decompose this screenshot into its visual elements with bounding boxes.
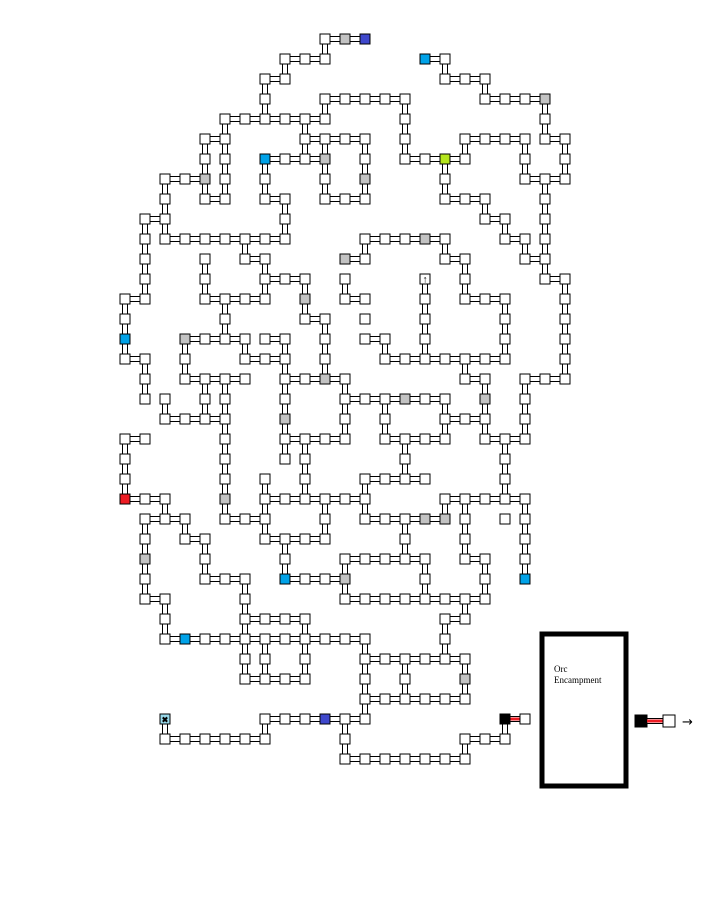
- room-7-10[interactable]: [260, 234, 270, 244]
- room-5-17[interactable]: [220, 374, 230, 384]
- room-9-25[interactable]: [300, 534, 310, 544]
- room-2-23[interactable]: [160, 494, 170, 504]
- room-21-8[interactable]: [540, 194, 550, 204]
- room-16-10[interactable]: [440, 234, 450, 244]
- room-6-11[interactable]: [240, 254, 250, 264]
- room-11-34[interactable]: [340, 714, 350, 724]
- room-20-3[interactable]: [520, 94, 530, 104]
- room-15-28[interactable]: [420, 594, 430, 604]
- room-10-25[interactable]: [320, 534, 330, 544]
- room-11-8[interactable]: [340, 194, 350, 204]
- room-14-26[interactable]: [400, 554, 410, 564]
- room-16-23[interactable]: [440, 494, 450, 504]
- room-17-23[interactable]: [460, 494, 470, 504]
- room-12-33[interactable]: [360, 694, 370, 704]
- room-6-28[interactable]: [240, 594, 250, 604]
- room-6-31[interactable]: [240, 654, 250, 664]
- room-11-17[interactable]: [340, 374, 350, 384]
- room-16-6[interactable]: [440, 154, 450, 164]
- room-2-7[interactable]: [160, 174, 170, 184]
- room-10-27[interactable]: [320, 574, 330, 584]
- room-13-22[interactable]: [380, 474, 390, 484]
- room-5-35[interactable]: [220, 734, 230, 744]
- room-11-19[interactable]: [340, 414, 350, 424]
- room-10-8[interactable]: [320, 194, 330, 204]
- room-7-29[interactable]: [260, 614, 270, 624]
- room-8-6[interactable]: [280, 154, 290, 164]
- room-13-16[interactable]: [380, 354, 390, 364]
- room-16-16[interactable]: [440, 354, 450, 364]
- room-6-35[interactable]: [240, 734, 250, 744]
- room-15-24[interactable]: [420, 514, 430, 524]
- room-14-25[interactable]: [400, 534, 410, 544]
- room-18-28[interactable]: [480, 594, 490, 604]
- room-10-15[interactable]: [320, 334, 330, 344]
- room-19-14[interactable]: [500, 314, 510, 324]
- room-21-17[interactable]: [540, 374, 550, 384]
- room-6-24[interactable]: [240, 514, 250, 524]
- room-10-17[interactable]: [320, 374, 330, 384]
- room-0-21[interactable]: [120, 454, 130, 464]
- room-11-27[interactable]: [340, 574, 350, 584]
- room-20-17[interactable]: [520, 374, 530, 384]
- room-13-33[interactable]: [380, 694, 390, 704]
- room-21-10[interactable]: [540, 234, 550, 244]
- room-1-11[interactable]: [140, 254, 150, 264]
- room-22-16[interactable]: [560, 354, 570, 364]
- room-12-34[interactable]: [360, 714, 370, 724]
- room-17-12[interactable]: [460, 274, 470, 284]
- room-10-24[interactable]: [320, 514, 330, 524]
- room-21-12[interactable]: [540, 274, 550, 284]
- room-9-4[interactable]: [300, 114, 310, 124]
- room-18-20[interactable]: [480, 434, 490, 444]
- room-9-30[interactable]: [300, 634, 310, 644]
- room-7-6[interactable]: [260, 154, 270, 164]
- room-11-36[interactable]: [340, 754, 350, 764]
- room-18-35[interactable]: [480, 734, 490, 744]
- room-7-8[interactable]: [260, 194, 270, 204]
- room-8-17[interactable]: [280, 374, 290, 384]
- room-1-13[interactable]: [140, 294, 150, 304]
- room-21-9[interactable]: [540, 214, 550, 224]
- room-16-33[interactable]: [440, 694, 450, 704]
- room-14-20[interactable]: [400, 434, 410, 444]
- room-17-24[interactable]: [460, 514, 470, 524]
- room-22-12[interactable]: [560, 274, 570, 284]
- room-12-22[interactable]: [360, 474, 370, 484]
- room-17-6[interactable]: [460, 154, 470, 164]
- room-7-11[interactable]: [260, 254, 270, 264]
- room-9-31[interactable]: [300, 654, 310, 664]
- room-20-18[interactable]: [520, 394, 530, 404]
- room-10-7[interactable]: [320, 174, 330, 184]
- room-8-8[interactable]: [280, 194, 290, 204]
- room-9-22[interactable]: [300, 474, 310, 484]
- room-17-13[interactable]: [460, 294, 470, 304]
- room-20-20[interactable]: [520, 434, 530, 444]
- room-19-3[interactable]: [500, 94, 510, 104]
- room-7-34[interactable]: [260, 714, 270, 724]
- room-20-5[interactable]: [520, 134, 530, 144]
- room-22-14[interactable]: [560, 314, 570, 324]
- room-17-8[interactable]: [460, 194, 470, 204]
- room-18-8[interactable]: [480, 194, 490, 204]
- room-12-23[interactable]: [360, 494, 370, 504]
- room-15-22[interactable]: [420, 474, 430, 484]
- room-13-31[interactable]: [380, 654, 390, 664]
- room-9-5[interactable]: [300, 134, 310, 144]
- room-3-17[interactable]: [180, 374, 190, 384]
- room-18-9[interactable]: [480, 214, 490, 224]
- room-7-35[interactable]: [260, 734, 270, 744]
- room-13-26[interactable]: [380, 554, 390, 564]
- room-10-3[interactable]: [320, 94, 330, 104]
- room-22-13[interactable]: [560, 294, 570, 304]
- room-12-15[interactable]: [360, 334, 370, 344]
- room-10-0[interactable]: [320, 34, 330, 44]
- room-5-5[interactable]: [220, 134, 230, 144]
- room-8-10[interactable]: [280, 234, 290, 244]
- room-20-34[interactable]: [520, 714, 530, 724]
- room-21-4[interactable]: [540, 114, 550, 124]
- room-3-30[interactable]: [180, 634, 190, 644]
- room-4-5[interactable]: [200, 134, 210, 144]
- room-9-6[interactable]: [300, 154, 310, 164]
- room-13-3[interactable]: [380, 94, 390, 104]
- room-10-5[interactable]: [320, 134, 330, 144]
- room-4-26[interactable]: [200, 554, 210, 564]
- room-9-14[interactable]: [300, 314, 310, 324]
- room-7-7[interactable]: [260, 174, 270, 184]
- room-7-13[interactable]: [260, 294, 270, 304]
- room-6-17[interactable]: [240, 374, 250, 384]
- room-4-10[interactable]: [200, 234, 210, 244]
- room-8-23[interactable]: [280, 494, 290, 504]
- room-10-16[interactable]: [320, 354, 330, 364]
- room-19-20[interactable]: [500, 434, 510, 444]
- room-2-28[interactable]: [160, 594, 170, 604]
- room-12-24[interactable]: [360, 514, 370, 524]
- room-4-8[interactable]: [200, 194, 210, 204]
- room-19-35[interactable]: [500, 734, 510, 744]
- room-7-24[interactable]: [260, 514, 270, 524]
- room-12-11[interactable]: [360, 254, 370, 264]
- room-2-19[interactable]: [160, 414, 170, 424]
- room-8-25[interactable]: [280, 534, 290, 544]
- room-4-13[interactable]: [200, 294, 210, 304]
- room-20-10[interactable]: [520, 234, 530, 244]
- room-14-31[interactable]: [400, 654, 410, 664]
- room-8-15[interactable]: [280, 334, 290, 344]
- room-20-7[interactable]: [520, 174, 530, 184]
- room-15-20[interactable]: [420, 434, 430, 444]
- room-2-10[interactable]: [160, 234, 170, 244]
- room-8-18[interactable]: [280, 394, 290, 404]
- room-14-36[interactable]: [400, 754, 410, 764]
- room-5-30[interactable]: [220, 634, 230, 644]
- room-7-2[interactable]: [260, 74, 270, 84]
- room-0-23[interactable]: [120, 494, 130, 504]
- room-15-27[interactable]: [420, 574, 430, 584]
- room-15-18[interactable]: [420, 394, 430, 404]
- room-3-15[interactable]: [180, 334, 190, 344]
- room-11-35[interactable]: [340, 734, 350, 744]
- room-12-31[interactable]: [360, 654, 370, 664]
- room-17-31[interactable]: [460, 654, 470, 664]
- room-5-13[interactable]: [220, 294, 230, 304]
- room-1-28[interactable]: [140, 594, 150, 604]
- room-15-16[interactable]: [420, 354, 430, 364]
- room-17-19[interactable]: [460, 414, 470, 424]
- room-1-16[interactable]: [140, 354, 150, 364]
- room-20-23[interactable]: [520, 494, 530, 504]
- room-5-18[interactable]: [220, 394, 230, 404]
- room-8-2[interactable]: [280, 74, 290, 84]
- room-12-13[interactable]: [360, 294, 370, 304]
- room-7-32[interactable]: [260, 674, 270, 684]
- room-8-26[interactable]: [280, 554, 290, 564]
- room-19-21[interactable]: [500, 454, 510, 464]
- room-15-13[interactable]: [420, 294, 430, 304]
- room-20-26[interactable]: [520, 554, 530, 564]
- room-7-23[interactable]: [260, 494, 270, 504]
- room-18-5[interactable]: [480, 134, 490, 144]
- room-18-26[interactable]: [480, 554, 490, 564]
- room-12-8[interactable]: [360, 194, 370, 204]
- room-14-28[interactable]: [400, 594, 410, 604]
- room-21-5[interactable]: [540, 134, 550, 144]
- room-15-1[interactable]: [420, 54, 430, 64]
- room-2-9[interactable]: [160, 214, 170, 224]
- room-9-1[interactable]: [300, 54, 310, 64]
- room-20-11[interactable]: [520, 254, 530, 264]
- room-8-34[interactable]: [280, 714, 290, 724]
- room-1-12[interactable]: [140, 274, 150, 284]
- room-5-19[interactable]: [220, 414, 230, 424]
- room-6-32[interactable]: [240, 674, 250, 684]
- room-8-1[interactable]: [280, 54, 290, 64]
- room-6-4[interactable]: [240, 114, 250, 124]
- room-16-18[interactable]: [440, 394, 450, 404]
- room-17-17[interactable]: [460, 374, 470, 384]
- room-14-24[interactable]: [400, 514, 410, 524]
- room-19-9[interactable]: [500, 214, 510, 224]
- room-8-32[interactable]: [280, 674, 290, 684]
- room-2-30[interactable]: [160, 634, 170, 644]
- room-16-1[interactable]: [440, 54, 450, 64]
- room-16-36[interactable]: [440, 754, 450, 764]
- room-3-24[interactable]: [180, 514, 190, 524]
- room-16-30[interactable]: [440, 634, 450, 644]
- room-11-20[interactable]: [340, 434, 350, 444]
- room-22-17[interactable]: [560, 374, 570, 384]
- room-17-26[interactable]: [460, 554, 470, 564]
- room-4-19[interactable]: [200, 414, 210, 424]
- room-14-21[interactable]: [400, 454, 410, 464]
- room-12-6[interactable]: [360, 154, 370, 164]
- room-20-27[interactable]: [520, 574, 530, 584]
- room-12-14[interactable]: [360, 314, 370, 324]
- room-9-23[interactable]: [300, 494, 310, 504]
- room-5-6[interactable]: [220, 154, 230, 164]
- room-4-17[interactable]: [200, 374, 210, 384]
- room-17-36[interactable]: [460, 754, 470, 764]
- room-16-11[interactable]: [440, 254, 450, 264]
- room-1-17[interactable]: [140, 374, 150, 384]
- room-18-23[interactable]: [480, 494, 490, 504]
- room-11-11[interactable]: [340, 254, 350, 264]
- room-7-30[interactable]: [260, 634, 270, 644]
- room-14-4[interactable]: [400, 114, 410, 124]
- room-1-26[interactable]: [140, 554, 150, 564]
- room-14-10[interactable]: [400, 234, 410, 244]
- room-22-7[interactable]: [560, 174, 570, 184]
- room-11-12[interactable]: [340, 274, 350, 284]
- room-13-10[interactable]: [380, 234, 390, 244]
- room-19-10[interactable]: [500, 234, 510, 244]
- room-16-28[interactable]: [440, 594, 450, 604]
- room-15-6[interactable]: [420, 154, 430, 164]
- room-15-31[interactable]: [420, 654, 430, 664]
- room-10-20[interactable]: [320, 434, 330, 444]
- room-0-16[interactable]: [120, 354, 130, 364]
- room-1-25[interactable]: [140, 534, 150, 544]
- room-14-5[interactable]: [400, 134, 410, 144]
- room-18-18[interactable]: [480, 394, 490, 404]
- room-7-12[interactable]: [260, 274, 270, 284]
- room-11-23[interactable]: [340, 494, 350, 504]
- room-19-5[interactable]: [500, 134, 510, 144]
- room-8-16[interactable]: [280, 354, 290, 364]
- room-22-5[interactable]: [560, 134, 570, 144]
- room-18-16[interactable]: [480, 354, 490, 364]
- room-10-30[interactable]: [320, 634, 330, 644]
- room-0-15[interactable]: [120, 334, 130, 344]
- room-12-32[interactable]: [360, 674, 370, 684]
- room-19-13[interactable]: [500, 294, 510, 304]
- room-3-16[interactable]: [180, 354, 190, 364]
- room-5-7[interactable]: [220, 174, 230, 184]
- room-5-10[interactable]: [220, 234, 230, 244]
- room-13-24[interactable]: [380, 514, 390, 524]
- room-14-16[interactable]: [400, 354, 410, 364]
- room-1-10[interactable]: [140, 234, 150, 244]
- room-13-15[interactable]: [380, 334, 390, 344]
- room-19-15[interactable]: [500, 334, 510, 344]
- room-16-29[interactable]: [440, 614, 450, 624]
- room-2-35[interactable]: [160, 734, 170, 744]
- room-12-3[interactable]: [360, 94, 370, 104]
- room-6-15[interactable]: [240, 334, 250, 344]
- room-17-16[interactable]: [460, 354, 470, 364]
- room-17-5[interactable]: [460, 134, 470, 144]
- room-15-36[interactable]: [420, 754, 430, 764]
- room-0-20[interactable]: [120, 434, 130, 444]
- room-16-20[interactable]: [440, 434, 450, 444]
- room-5-21[interactable]: [220, 454, 230, 464]
- room-10-1[interactable]: [320, 54, 330, 64]
- room-20-25[interactable]: [520, 534, 530, 544]
- room-11-26[interactable]: [340, 554, 350, 564]
- room-14-32[interactable]: [400, 674, 410, 684]
- room-4-30[interactable]: [200, 634, 210, 644]
- room-16-19[interactable]: [440, 414, 450, 424]
- room-12-18[interactable]: [360, 394, 370, 404]
- room-1-9[interactable]: [140, 214, 150, 224]
- room-6-13[interactable]: [240, 294, 250, 304]
- room-7-31[interactable]: [260, 654, 270, 664]
- room-10-23[interactable]: [320, 494, 330, 504]
- room-14-18[interactable]: [400, 394, 410, 404]
- room-8-27[interactable]: [280, 574, 290, 584]
- room-9-21[interactable]: [300, 454, 310, 464]
- room-20-6[interactable]: [520, 154, 530, 164]
- room-16-31[interactable]: [440, 654, 450, 664]
- room-17-35[interactable]: [460, 734, 470, 744]
- room-0-13[interactable]: [120, 294, 130, 304]
- room-15-10[interactable]: [420, 234, 430, 244]
- room-11-0[interactable]: [340, 34, 350, 44]
- room-4-7[interactable]: [200, 174, 210, 184]
- room-22-15[interactable]: [560, 334, 570, 344]
- room-13-28[interactable]: [380, 594, 390, 604]
- room-14-22[interactable]: [400, 474, 410, 484]
- room-9-32[interactable]: [300, 674, 310, 684]
- room-11-13[interactable]: [340, 294, 350, 304]
- room-14-6[interactable]: [400, 154, 410, 164]
- room-2-24[interactable]: [160, 514, 170, 524]
- room-20-24[interactable]: [520, 514, 530, 524]
- room-18-2[interactable]: [480, 74, 490, 84]
- room-12-30[interactable]: [360, 634, 370, 644]
- room-4-11[interactable]: [200, 254, 210, 264]
- room-18-27[interactable]: [480, 574, 490, 584]
- room-15-26[interactable]: [420, 554, 430, 564]
- room-11-30[interactable]: [340, 634, 350, 644]
- room-14-3[interactable]: [400, 94, 410, 104]
- room-5-24[interactable]: [220, 514, 230, 524]
- room-8-29[interactable]: [280, 614, 290, 624]
- room-1-24[interactable]: [140, 514, 150, 524]
- room-18-13[interactable]: [480, 294, 490, 304]
- room-4-18[interactable]: [200, 394, 210, 404]
- room-4-35[interactable]: [200, 734, 210, 744]
- room-21-11[interactable]: [540, 254, 550, 264]
- room-16-8[interactable]: [440, 194, 450, 204]
- room-21-7[interactable]: [540, 174, 550, 184]
- room-22-6[interactable]: [560, 154, 570, 164]
- room-13-36[interactable]: [380, 754, 390, 764]
- room-0-14[interactable]: [120, 314, 130, 324]
- room-16-7[interactable]: [440, 174, 450, 184]
- room-6-16[interactable]: [240, 354, 250, 364]
- room-15-33[interactable]: [420, 694, 430, 704]
- room-0-22[interactable]: [120, 474, 130, 484]
- room-18-17[interactable]: [480, 374, 490, 384]
- room-7-22[interactable]: [260, 474, 270, 484]
- room-8-9[interactable]: [280, 214, 290, 224]
- room-10-14[interactable]: [320, 314, 330, 324]
- room-12-0[interactable]: [360, 34, 370, 44]
- room-13-20[interactable]: [380, 434, 390, 444]
- room-11-18[interactable]: [340, 394, 350, 404]
- room-5-4[interactable]: [220, 114, 230, 124]
- room-9-17[interactable]: [300, 374, 310, 384]
- room-8-12[interactable]: [280, 274, 290, 284]
- room-13-18[interactable]: [380, 394, 390, 404]
- room-4-12[interactable]: [200, 274, 210, 284]
